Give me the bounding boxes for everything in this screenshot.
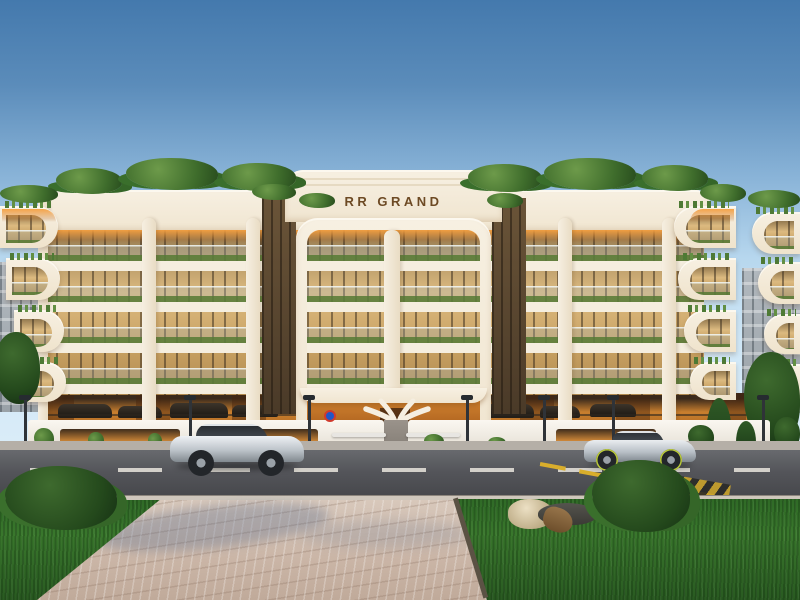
pod-glass bbox=[690, 267, 730, 295]
rooftop-shrub bbox=[56, 168, 122, 194]
street-lamp-head bbox=[19, 395, 31, 400]
facade-pier bbox=[142, 218, 156, 449]
end-balcony-pod bbox=[764, 314, 800, 354]
recessed-glass-notch bbox=[262, 198, 296, 414]
street-lamp-head bbox=[461, 395, 473, 400]
pod-glass bbox=[764, 221, 794, 249]
rooftop-shrub bbox=[700, 184, 746, 202]
corner-balcony-pod bbox=[6, 258, 60, 300]
facade-pier bbox=[246, 218, 260, 449]
suv-wheel bbox=[188, 450, 214, 476]
rooftop-shrub bbox=[748, 190, 800, 208]
street-lamp-head bbox=[607, 395, 619, 400]
end-balcony-pod bbox=[752, 212, 800, 254]
rooftop-shrub bbox=[468, 164, 542, 192]
center-pier bbox=[384, 230, 400, 394]
corner-orange-soffit bbox=[2, 209, 56, 222]
rooftop-shrub bbox=[299, 193, 335, 208]
facade-pier bbox=[558, 218, 572, 449]
pod-glass bbox=[12, 267, 48, 295]
rooftop-shrub bbox=[0, 185, 58, 203]
corner-orange-soffit bbox=[690, 209, 734, 222]
crown-groove-line bbox=[289, 178, 498, 180]
corner-balcony-pod bbox=[678, 258, 736, 300]
traffic-sign-disc bbox=[324, 410, 336, 422]
pod-glass bbox=[702, 371, 730, 395]
pod-glass bbox=[696, 319, 730, 347]
corner-balcony-pod bbox=[690, 362, 736, 400]
corner-balcony-pod bbox=[684, 310, 736, 352]
crown-groove-line bbox=[289, 184, 498, 186]
silver-suv bbox=[170, 424, 304, 468]
end-balcony-pod bbox=[758, 262, 800, 304]
pod-glass bbox=[770, 271, 794, 299]
street-lamp-head bbox=[538, 395, 550, 400]
rooftop-shrub bbox=[252, 184, 296, 200]
recessed-glass-notch bbox=[492, 198, 526, 414]
rooftop-shrub bbox=[487, 193, 523, 208]
soft-shadow bbox=[300, 520, 470, 548]
rooftop-shrub bbox=[642, 165, 708, 191]
suv-wheel bbox=[258, 450, 284, 476]
street-lamp-head bbox=[757, 395, 769, 400]
scene-rr-grand-render: RR GRAND bbox=[0, 0, 800, 600]
street-lamp-head bbox=[303, 395, 315, 400]
pod-glass bbox=[776, 323, 794, 349]
facade-pier bbox=[662, 218, 676, 449]
gate-barrier-arm-left bbox=[332, 433, 386, 437]
street-lamp-head bbox=[184, 395, 196, 400]
